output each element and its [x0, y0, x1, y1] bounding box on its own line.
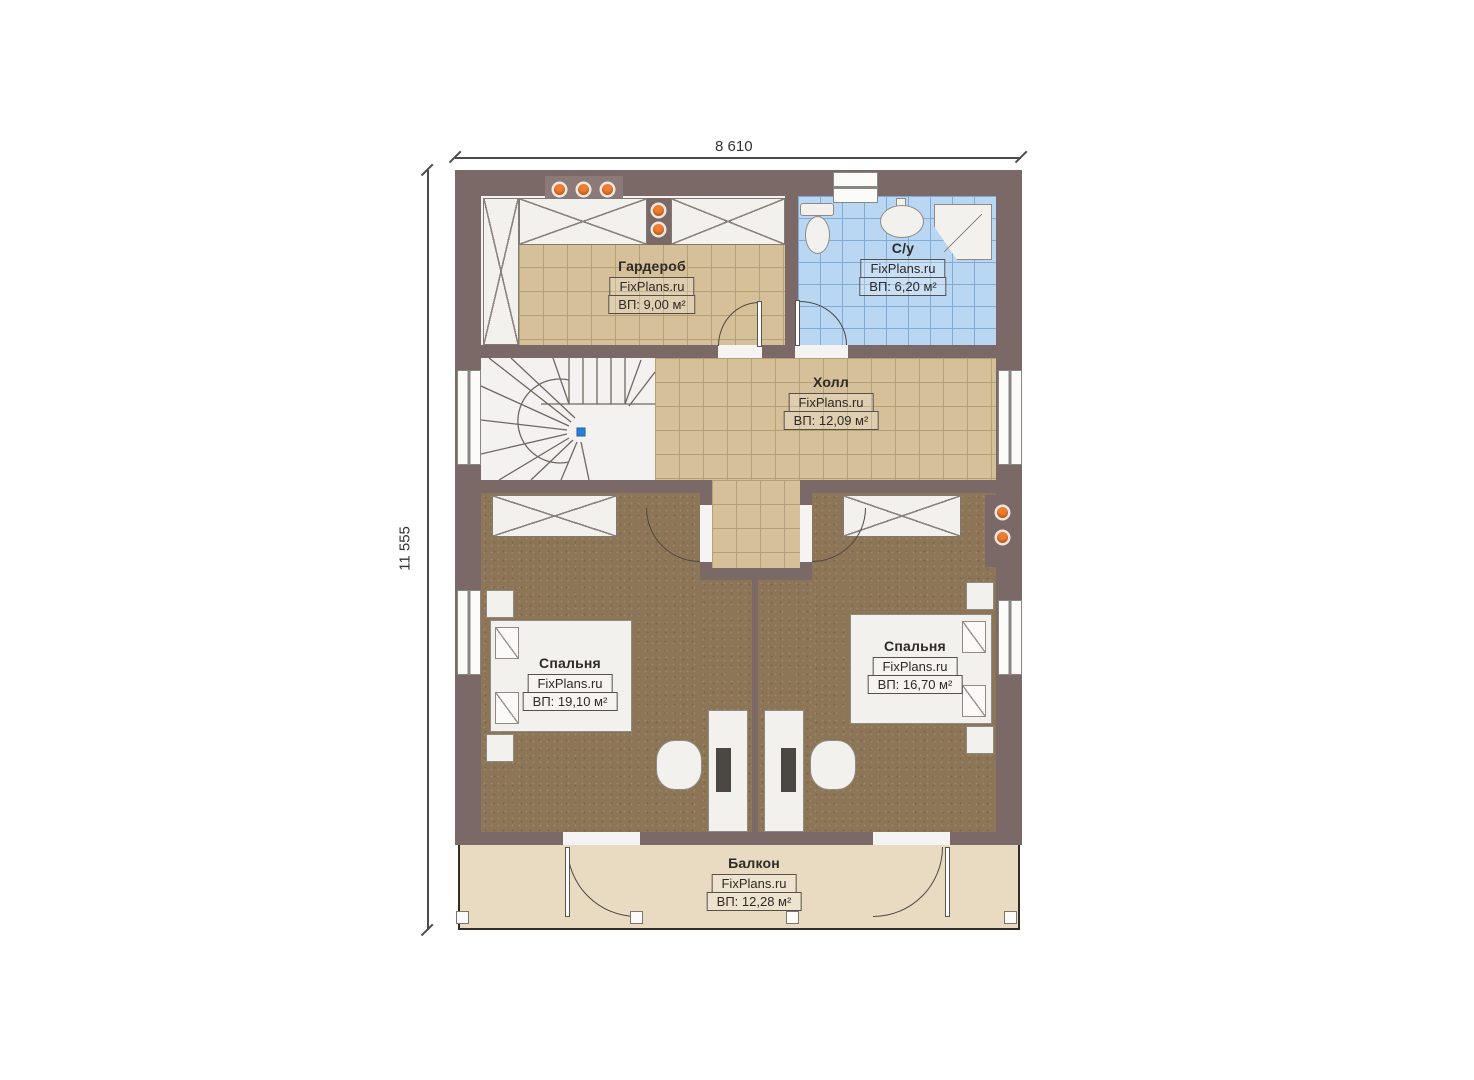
room-site: FixPlans.ru: [872, 657, 957, 676]
vent-block-bedroom-right: [985, 495, 1022, 567]
room-site: FixPlans.ru: [860, 259, 945, 278]
heater-dot: [653, 224, 664, 235]
closet-wardrobe-left: [483, 198, 519, 345]
computer-icon: [781, 748, 796, 792]
room-site: FixPlans.ru: [609, 277, 694, 296]
heater-dot: [602, 184, 613, 195]
nightstand: [966, 582, 994, 610]
wardrobe-door-opening: [718, 345, 762, 358]
dimension-height-label: 11 555: [397, 509, 414, 589]
window-right-upper: [998, 370, 1022, 465]
room-name: Балкон: [728, 855, 780, 871]
room-name: С/у: [892, 240, 914, 256]
heater-dot: [554, 184, 565, 195]
stairs-icon: [481, 358, 655, 480]
room-area: ВП: 12,09 м²: [784, 411, 879, 430]
room-label-wardrobe: Гардероб FixPlans.ru ВП: 9,00 м²: [608, 258, 695, 314]
toilet-icon: [805, 216, 830, 254]
stair-marker: [577, 428, 585, 436]
heater-dot: [578, 184, 589, 195]
chair-left: [656, 740, 702, 790]
room-area: ВП: 12,28 м²: [707, 892, 802, 911]
room-label-balcony: Балкон FixPlans.ru ВП: 12,28 м²: [707, 855, 802, 911]
bedroom-right-door-opening: [800, 505, 812, 562]
room-name: Холл: [813, 374, 849, 390]
balcony-door-right-opening: [873, 832, 950, 845]
chair-right: [810, 740, 856, 790]
closet-wardrobe-a: [519, 198, 647, 245]
nightstand: [486, 734, 514, 762]
room-label-hall: Холл FixPlans.ru ВП: 12,09 м²: [784, 374, 879, 430]
pillow: [962, 685, 986, 717]
railing-post: [630, 911, 643, 924]
balcony-door-left-opening: [563, 832, 640, 845]
nightstand: [486, 590, 514, 618]
bedroom-left-door-opening: [700, 505, 712, 562]
computer-icon: [716, 748, 731, 792]
hall-corridor: [712, 480, 800, 568]
wardrobe-door-leaf: [757, 301, 762, 347]
pillow: [495, 692, 519, 724]
room-site: FixPlans.ru: [711, 874, 796, 893]
room-name: Спальня: [539, 655, 601, 671]
room-area: ВП: 16,70 м²: [868, 675, 963, 694]
room-label-bathroom: С/у FixPlans.ru ВП: 6,20 м²: [859, 240, 946, 296]
window-left-upper: [457, 370, 481, 465]
room-label-bedroom-right: Спальня FixPlans.ru ВП: 16,70 м²: [868, 638, 963, 694]
sink-icon: [880, 205, 924, 238]
railing-post: [786, 911, 799, 924]
room-site: FixPlans.ru: [788, 393, 873, 412]
bathroom-door-opening: [795, 345, 848, 358]
window-left-lower: [457, 590, 481, 675]
room-name: Спальня: [884, 638, 946, 654]
closet-bedroom-left: [492, 495, 617, 537]
dimension-line-top: [455, 157, 1021, 159]
heater-dot: [997, 507, 1008, 518]
balcony-door-right-leaf: [945, 847, 950, 917]
bathroom-door-leaf: [795, 300, 800, 346]
pillow: [495, 627, 519, 659]
window-right-lower: [998, 600, 1022, 675]
room-name: Гардероб: [618, 258, 686, 274]
room-site: FixPlans.ru: [527, 674, 612, 693]
pillow: [962, 621, 986, 653]
railing-post: [456, 911, 469, 924]
nightstand: [966, 726, 994, 754]
dimension-line-left: [427, 170, 429, 930]
room-area: ВП: 6,20 м²: [859, 277, 946, 296]
window-top: [833, 172, 878, 203]
room-label-bedroom-left: Спальня FixPlans.ru ВП: 19,10 м²: [523, 655, 618, 711]
railing-post: [1004, 911, 1017, 924]
heater-dot: [653, 205, 664, 216]
closet-wardrobe-b: [671, 198, 785, 245]
toilet-tank-icon: [800, 203, 834, 216]
balcony-door-left-leaf: [565, 847, 570, 917]
heater-dot: [997, 532, 1008, 543]
room-area: ВП: 9,00 м²: [608, 295, 695, 314]
dimension-width-label: 8 610: [715, 138, 753, 155]
room-area: ВП: 19,10 м²: [523, 692, 618, 711]
shower-glass-line: [944, 214, 982, 252]
floorplan-canvas: 8 610 11 555: [0, 0, 1474, 1080]
